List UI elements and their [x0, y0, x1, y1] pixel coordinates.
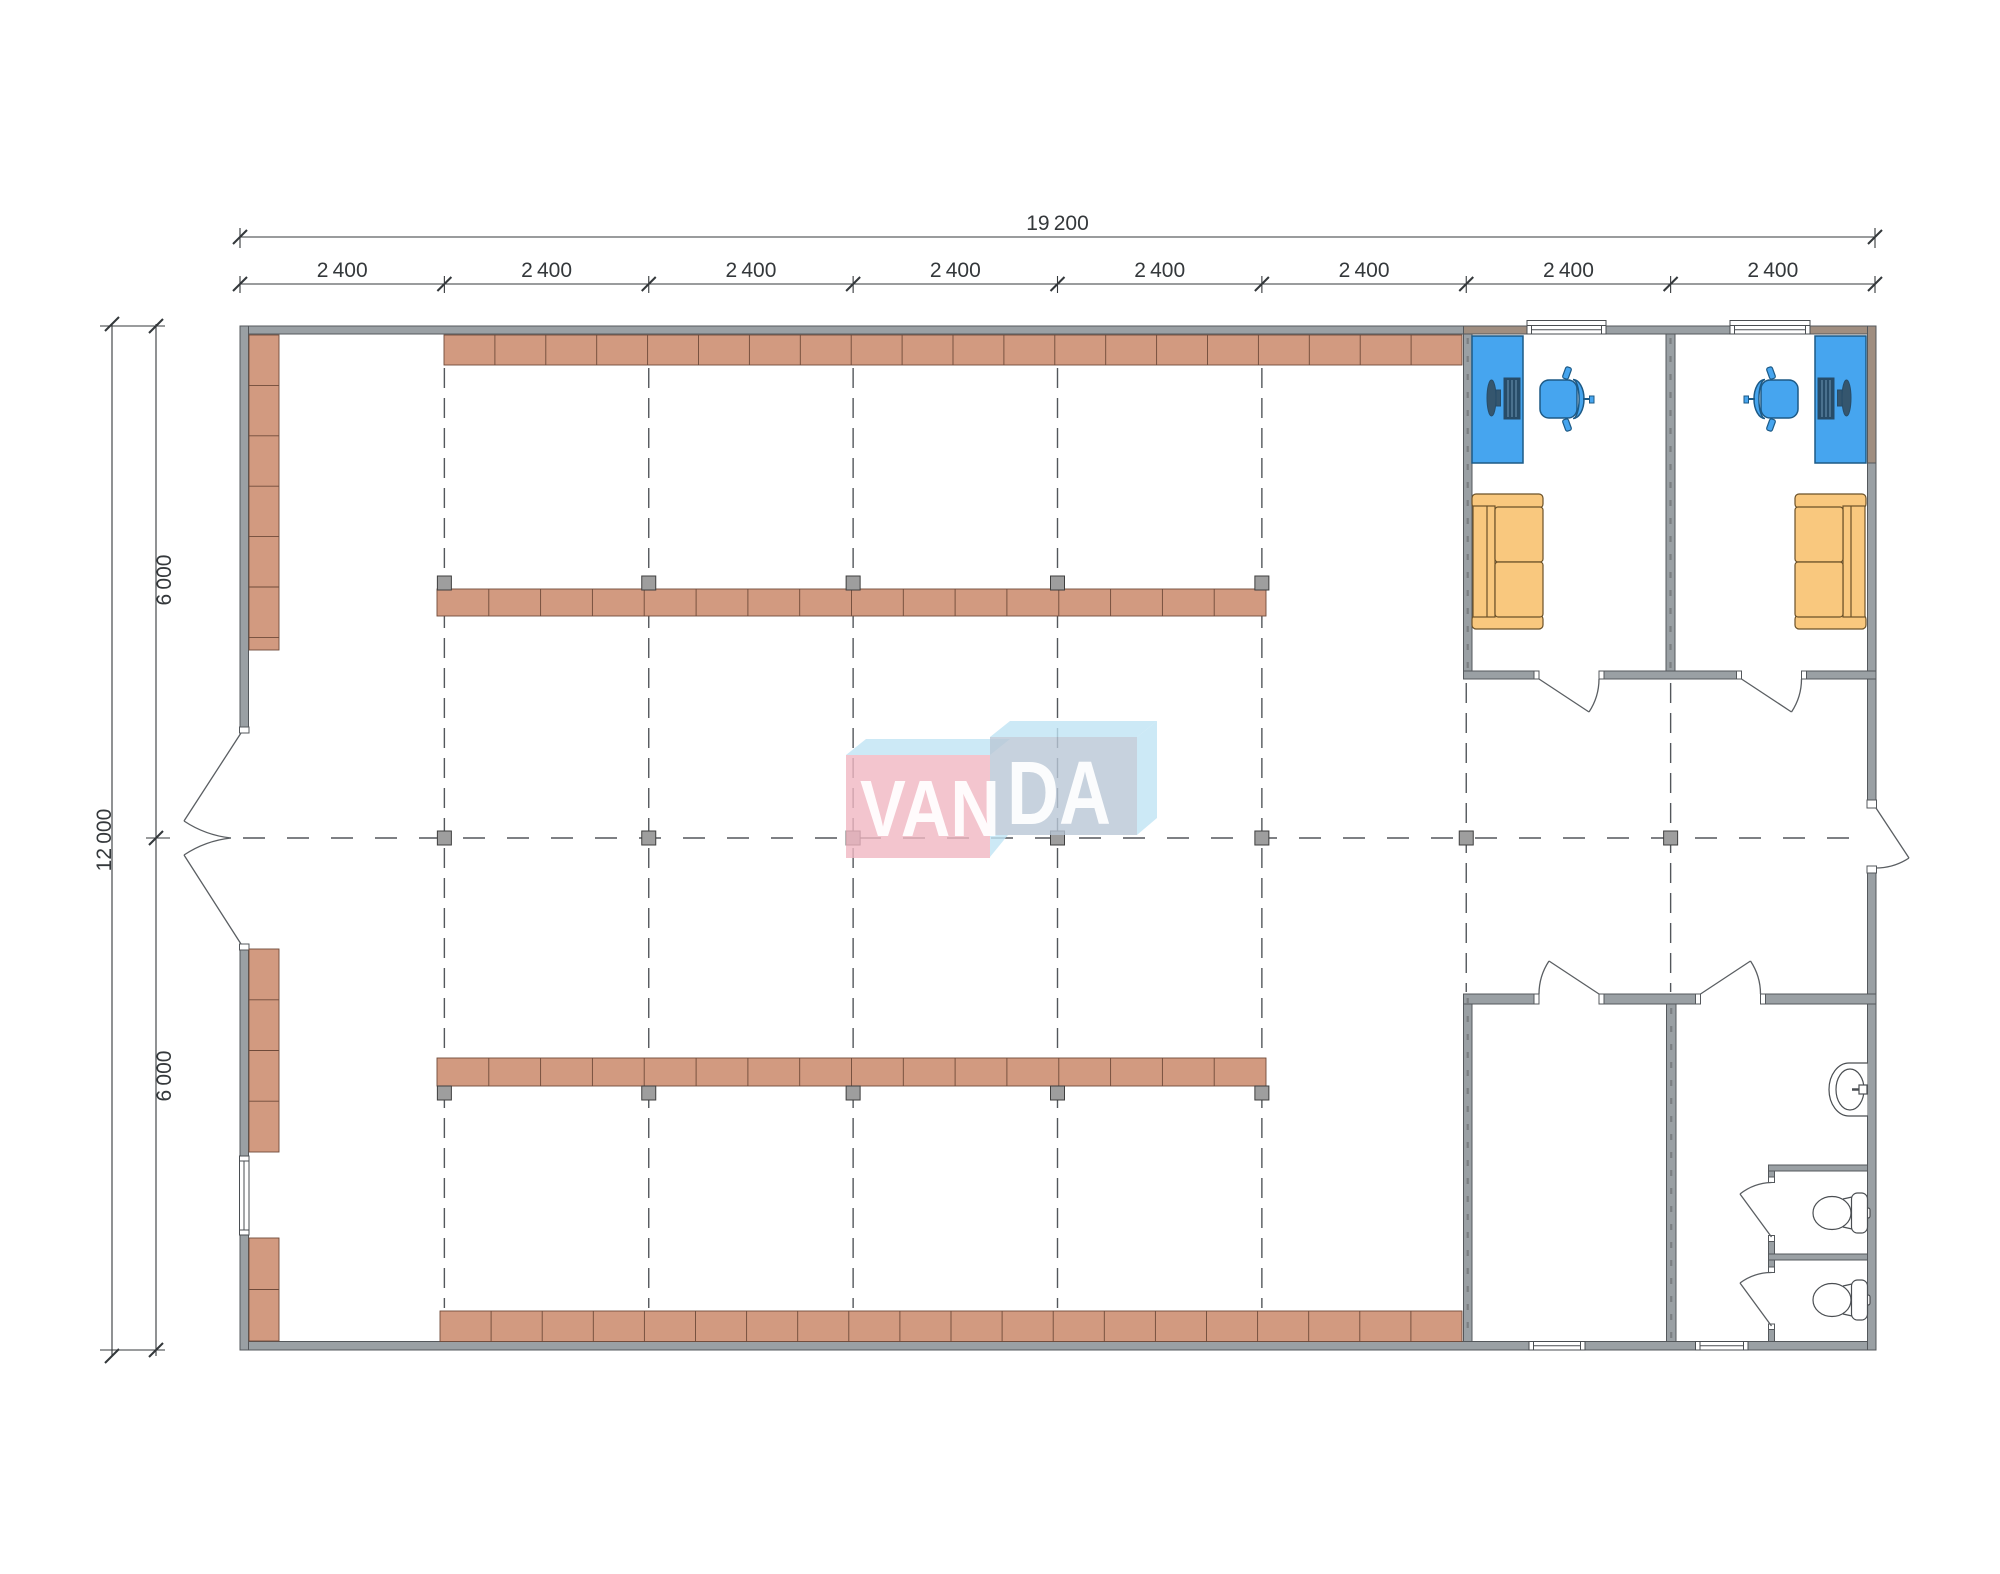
svg-text:VAN: VAN [860, 764, 1000, 853]
svg-text:6 000: 6 000 [153, 555, 176, 606]
svg-text:2 400: 2 400 [317, 259, 368, 282]
svg-text:2 400: 2 400 [1747, 259, 1798, 282]
svg-text:2 400: 2 400 [1543, 259, 1594, 282]
svg-text:19 200: 19 200 [1026, 212, 1089, 235]
svg-text:2 400: 2 400 [521, 259, 572, 282]
svg-text:2 400: 2 400 [1134, 259, 1185, 282]
svg-text:2 400: 2 400 [725, 259, 776, 282]
svg-text:DA: DA [1007, 744, 1111, 844]
svg-text:12 000: 12 000 [93, 809, 116, 872]
svg-text:2 400: 2 400 [930, 259, 981, 282]
svg-text:6 000: 6 000 [153, 1051, 176, 1102]
svg-text:2 400: 2 400 [1339, 259, 1390, 282]
